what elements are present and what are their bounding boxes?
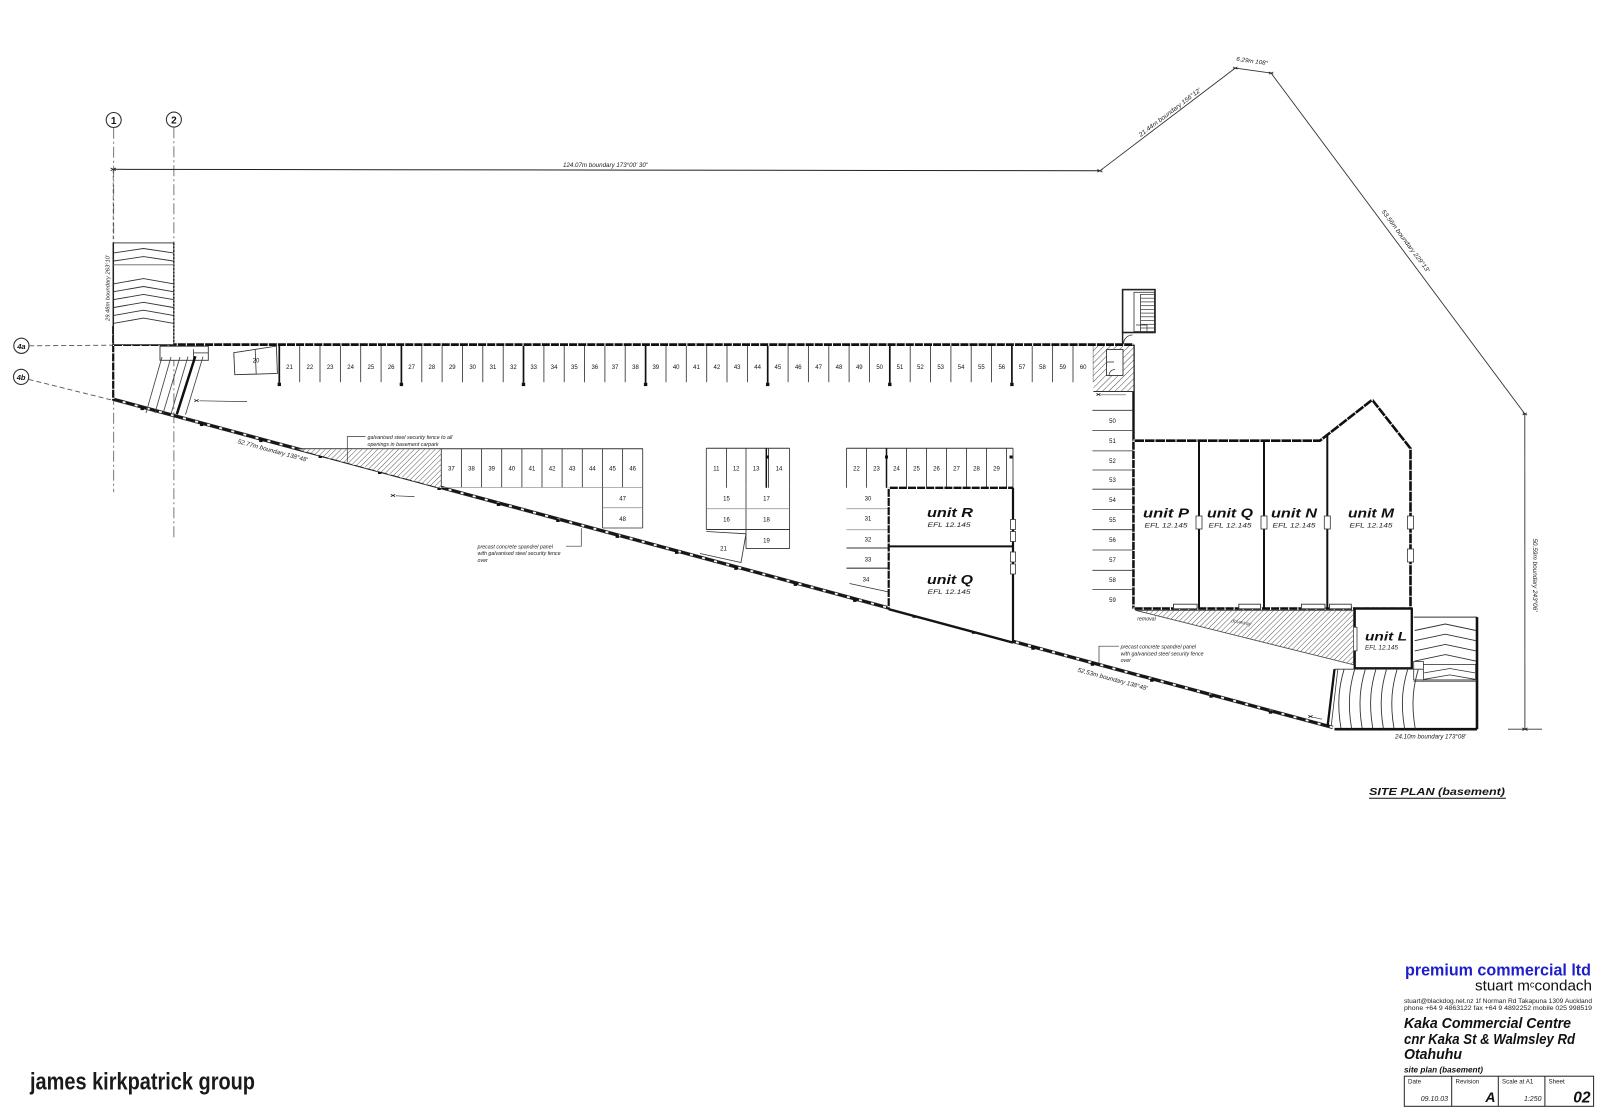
svg-text:unit M: unit M xyxy=(1348,507,1395,521)
svg-text:56: 56 xyxy=(1109,538,1116,544)
svg-text:29: 29 xyxy=(449,365,456,371)
svg-text:32: 32 xyxy=(510,365,517,371)
svg-text:EFL 12.145: EFL 12.145 xyxy=(928,522,972,529)
svg-text:24.10m boundary 173°08': 24.10m boundary 173°08' xyxy=(1394,733,1467,741)
svg-text:31: 31 xyxy=(865,517,872,523)
svg-text:48: 48 xyxy=(836,365,843,371)
svg-text:unit P: unit P xyxy=(1143,507,1190,521)
svg-text:28: 28 xyxy=(429,365,436,371)
svg-text:removal: removal xyxy=(1137,617,1156,623)
svg-text:21: 21 xyxy=(286,365,293,371)
svg-text:stuart mccondach: stuart mccondach xyxy=(1475,978,1592,995)
svg-text:28: 28 xyxy=(973,466,980,472)
svg-text:EFL 12.145: EFL 12.145 xyxy=(1365,645,1399,652)
svg-text:unit Q: unit Q xyxy=(1207,507,1253,521)
svg-text:EFL 12.145: EFL 12.145 xyxy=(1209,523,1253,530)
svg-text:over: over xyxy=(1121,658,1132,664)
svg-text:EFL 12.145: EFL 12.145 xyxy=(928,589,972,596)
svg-text:1: 1 xyxy=(111,116,117,127)
svg-text:49: 49 xyxy=(856,365,863,371)
svg-text:EFL 12.145: EFL 12.145 xyxy=(1145,523,1189,530)
svg-text:50.59m boundary 243°06': 50.59m boundary 243°06' xyxy=(1531,539,1538,613)
svg-text:09.10.03: 09.10.03 xyxy=(1421,1096,1448,1103)
svg-text:43: 43 xyxy=(569,466,576,472)
svg-text:47: 47 xyxy=(815,365,822,371)
svg-text:21: 21 xyxy=(720,547,727,553)
svg-text:59: 59 xyxy=(1109,598,1116,604)
svg-text:13: 13 xyxy=(753,466,760,472)
svg-text:31: 31 xyxy=(490,365,497,371)
svg-text:24: 24 xyxy=(893,466,900,472)
svg-text:EFL 12.145: EFL 12.145 xyxy=(1350,523,1394,530)
svg-text:44: 44 xyxy=(589,466,596,472)
svg-text:precast concrete spandrel pane: precast concrete spandrel panel xyxy=(477,545,554,551)
svg-text:38: 38 xyxy=(468,466,475,472)
svg-text:1:250: 1:250 xyxy=(1524,1096,1542,1103)
svg-text:Otahuhu: Otahuhu xyxy=(1404,1047,1462,1063)
svg-text:16: 16 xyxy=(723,518,730,524)
svg-text:precast concrete spandrel pane: precast concrete spandrel panel xyxy=(1120,645,1197,651)
svg-text:51: 51 xyxy=(897,365,904,371)
svg-text:52: 52 xyxy=(1109,459,1116,465)
svg-text:A: A xyxy=(1484,1089,1495,1105)
svg-text:stuart@blackdog.net.nz 1f Nor: stuart@blackdog.net.nz 1f Norman Rd Taka… xyxy=(1404,998,1592,1005)
svg-text:43: 43 xyxy=(734,365,741,371)
svg-text:39: 39 xyxy=(488,466,495,472)
svg-text:32: 32 xyxy=(865,538,872,544)
svg-text:52: 52 xyxy=(917,365,924,371)
svg-text:with galvanised steel security: with galvanised steel security fence xyxy=(478,551,561,557)
svg-text:39: 39 xyxy=(652,365,659,371)
svg-text:54: 54 xyxy=(958,365,965,371)
svg-text:29: 29 xyxy=(993,466,1000,472)
svg-text:26: 26 xyxy=(933,466,940,472)
svg-text:SITE PLAN (basement): SITE PLAN (basement) xyxy=(1369,787,1506,798)
svg-text:25: 25 xyxy=(368,365,375,371)
svg-text:55: 55 xyxy=(978,365,985,371)
svg-text:22: 22 xyxy=(853,466,860,472)
svg-text:36: 36 xyxy=(591,365,598,371)
svg-text:4a: 4a xyxy=(16,342,25,351)
svg-text:53: 53 xyxy=(937,365,944,371)
svg-text:11: 11 xyxy=(713,466,720,472)
svg-text:58: 58 xyxy=(1109,578,1116,584)
svg-text:56: 56 xyxy=(998,365,1005,371)
svg-text:57: 57 xyxy=(1109,558,1116,564)
svg-text:20: 20 xyxy=(253,358,260,364)
svg-text:19: 19 xyxy=(763,539,770,545)
svg-text:35: 35 xyxy=(571,365,578,371)
svg-text:12: 12 xyxy=(733,466,740,472)
svg-text:45: 45 xyxy=(775,365,782,371)
svg-text:37: 37 xyxy=(448,466,455,472)
svg-text:unit R: unit R xyxy=(927,506,973,520)
svg-text:42: 42 xyxy=(714,365,721,371)
svg-text:47: 47 xyxy=(619,497,626,503)
svg-text:41: 41 xyxy=(529,466,536,472)
svg-text:46: 46 xyxy=(629,466,636,472)
svg-text:Scale at A1: Scale at A1 xyxy=(1502,1079,1534,1086)
svg-text:55: 55 xyxy=(1109,518,1116,524)
svg-text:34: 34 xyxy=(863,578,870,584)
svg-text:unit N: unit N xyxy=(1271,507,1318,521)
svg-text:17: 17 xyxy=(763,497,770,503)
svg-text:24: 24 xyxy=(347,365,354,371)
svg-text:14: 14 xyxy=(776,466,783,472)
svg-text:Sheet: Sheet xyxy=(1549,1079,1565,1086)
svg-text:phone +64 9 4863122 fax +64 9: phone +64 9 4863122 fax +64 9 4892252 mo… xyxy=(1404,1005,1592,1012)
svg-text:2: 2 xyxy=(171,115,177,126)
svg-text:34: 34 xyxy=(551,365,558,371)
svg-text:15: 15 xyxy=(723,497,730,503)
svg-text:4b: 4b xyxy=(16,373,26,382)
svg-text:23: 23 xyxy=(327,365,334,371)
svg-text:46: 46 xyxy=(795,365,802,371)
svg-text:galvanised steel security fenc: galvanised steel security fence to all xyxy=(368,435,454,441)
svg-text:30: 30 xyxy=(865,497,872,503)
svg-text:Revision: Revision xyxy=(1456,1079,1480,1086)
svg-text:33: 33 xyxy=(530,365,537,371)
svg-text:51: 51 xyxy=(1109,439,1116,445)
svg-text:Date: Date xyxy=(1408,1079,1422,1086)
svg-text:cnr Kaka St & Walmsley Rd: cnr Kaka St & Walmsley Rd xyxy=(1404,1032,1576,1048)
svg-text:unit Q: unit Q xyxy=(927,573,973,587)
svg-text:58: 58 xyxy=(1039,365,1046,371)
svg-text:48: 48 xyxy=(619,517,626,523)
svg-text:18: 18 xyxy=(763,518,770,524)
svg-text:44: 44 xyxy=(754,365,761,371)
svg-text:site plan (basement): site plan (basement) xyxy=(1404,1065,1483,1074)
svg-text:27: 27 xyxy=(953,466,960,472)
svg-text:26: 26 xyxy=(388,365,395,371)
svg-text:42: 42 xyxy=(549,466,556,472)
svg-text:27: 27 xyxy=(408,365,415,371)
svg-text:Kaka Commercial Centre: Kaka Commercial Centre xyxy=(1404,1016,1571,1032)
svg-text:openings in basement carpark: openings in basement carpark xyxy=(368,442,439,448)
svg-text:38: 38 xyxy=(632,365,639,371)
svg-text:02: 02 xyxy=(1573,1090,1591,1107)
svg-text:37: 37 xyxy=(612,365,619,371)
svg-text:unit L: unit L xyxy=(1365,632,1407,644)
svg-text:30: 30 xyxy=(469,365,476,371)
svg-text:60: 60 xyxy=(1080,365,1087,371)
svg-text:33: 33 xyxy=(865,558,872,564)
svg-text:45: 45 xyxy=(609,466,616,472)
svg-text:23: 23 xyxy=(873,466,880,472)
svg-text:50: 50 xyxy=(1109,419,1116,425)
svg-text:41: 41 xyxy=(693,365,700,371)
svg-text:james kirkpatrick group: james kirkpatrick group xyxy=(29,1069,255,1096)
svg-text:EFL 12.145: EFL 12.145 xyxy=(1273,523,1317,530)
svg-text:124.07m boundary 173°00' 30": 124.07m boundary 173°00' 30" xyxy=(563,161,649,169)
svg-text:40: 40 xyxy=(673,365,680,371)
svg-text:50: 50 xyxy=(876,365,883,371)
svg-text:over: over xyxy=(478,558,489,564)
svg-text:53: 53 xyxy=(1109,478,1116,484)
svg-text:22: 22 xyxy=(307,365,314,371)
svg-text:59: 59 xyxy=(1059,365,1066,371)
svg-text:25: 25 xyxy=(913,466,920,472)
svg-text:29.48m boundary 263°10': 29.48m boundary 263°10' xyxy=(106,254,112,322)
svg-text:57: 57 xyxy=(1019,365,1026,371)
svg-text:40: 40 xyxy=(508,466,515,472)
svg-text:with galvanised steel security: with galvanised steel security fence xyxy=(1121,651,1204,657)
svg-text:54: 54 xyxy=(1109,498,1116,504)
